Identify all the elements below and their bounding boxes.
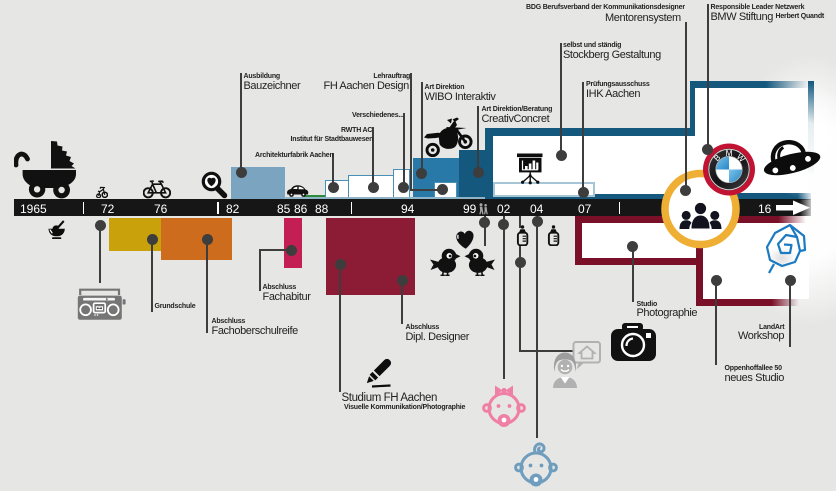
svg-text:M: M [726, 149, 733, 158]
